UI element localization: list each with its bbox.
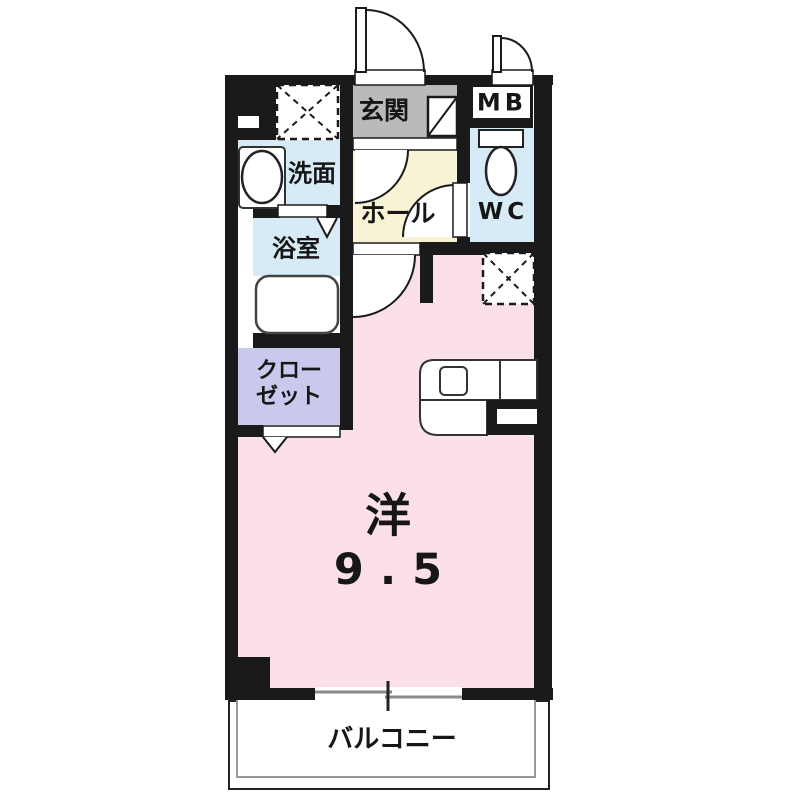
room-door-swing — [353, 255, 415, 317]
bathtub-icon — [256, 276, 338, 333]
main-room-size: 9.5 — [334, 545, 458, 597]
closet-label: クロー ゼット — [256, 359, 322, 412]
balcony-label: バルコニー — [327, 724, 456, 755]
mb-label: MB — [477, 89, 527, 118]
closet-label-line2: ゼット — [256, 385, 322, 411]
mb-door-leaf-icon — [493, 36, 501, 72]
washroom-label: 洗面 — [288, 160, 336, 189]
closet-door-leaf-icon — [263, 426, 340, 437]
kitchen-wall-slot — [497, 409, 537, 424]
hall-label: ホール — [360, 199, 435, 229]
closet-label-line1: クロー — [256, 359, 322, 385]
genkan-label: 玄関 — [359, 96, 409, 126]
closet-folding-door-icon — [263, 437, 287, 452]
genkan-step — [353, 138, 457, 150]
mb-door-arc-icon — [501, 38, 532, 72]
toilet-icon — [486, 147, 516, 195]
entrance-door-leaf-icon — [356, 8, 366, 72]
toilet-tank — [479, 130, 523, 147]
main-room-label: 洋 — [365, 488, 411, 543]
wall-notch — [238, 116, 259, 128]
wc-door-leaf-icon — [453, 183, 467, 237]
entrance-door-arc-icon — [366, 10, 424, 72]
bathroom-folding-door-icon — [317, 218, 337, 237]
wc-label: WC — [478, 199, 528, 227]
stove-icon — [440, 367, 467, 395]
sink-icon — [242, 151, 282, 203]
bathroom-label: 浴室 — [272, 235, 320, 264]
room-door-leaf-icon — [353, 243, 420, 255]
bathroom-door-leaf-icon — [278, 205, 327, 217]
floor-plan: 玄関 ホール 洗面 浴室 WC MB クロー ゼット 洋 9.5 バルコニー — [0, 0, 800, 800]
